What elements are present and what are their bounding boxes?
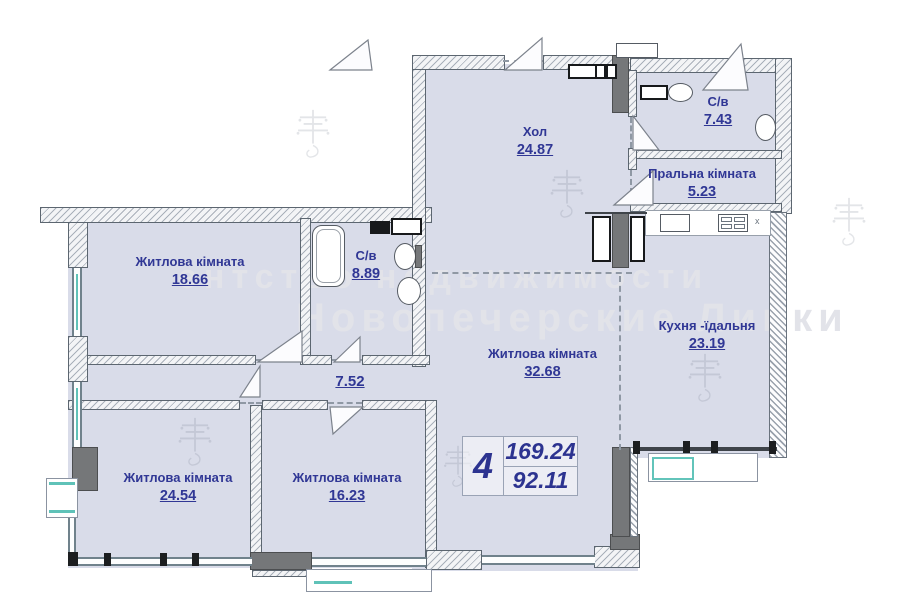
room-label-corridor: 7.52 [312,372,388,392]
door-swing-bathroom-main [334,337,360,362]
living-area: 92.11 [504,467,577,496]
room-label-laundry: Пральна кімната 5.23 [622,166,782,201]
room-label-kitchen: Кухня -їдальня 23.19 [627,318,787,353]
room-label-living-3: Житлова кімната 16.23 [265,470,429,505]
room-label-living-1: Житлова кімната 18.66 [108,254,272,289]
total-area: 169.24 [504,437,577,467]
door-swing-living-1 [258,331,302,362]
door-swing [703,44,748,90]
room-label-living-2: Житлова кімната 24.54 [96,470,260,505]
door-swing-living-3 [330,407,363,434]
room-label-bathroom-small: С/в 7.43 [687,94,749,129]
floor-plan: ентство недвижимости Новопечерские Липки [0,0,924,614]
door-swing-entrance [505,38,542,70]
room-label-hall: Хол 24.87 [493,124,577,159]
rooms-count: 4 [463,437,504,495]
room-label-bathroom-main: С/в 8.89 [338,248,394,283]
door-swing-living-2 [240,366,260,397]
door-swing [330,40,372,70]
room-label-living-main: Житлова кімната 32.68 [460,346,625,381]
door-swing-bathroom-small [633,116,659,150]
door-swings-layer [0,0,924,614]
apartment-info-box: 4 169.24 92.11 [462,436,578,496]
